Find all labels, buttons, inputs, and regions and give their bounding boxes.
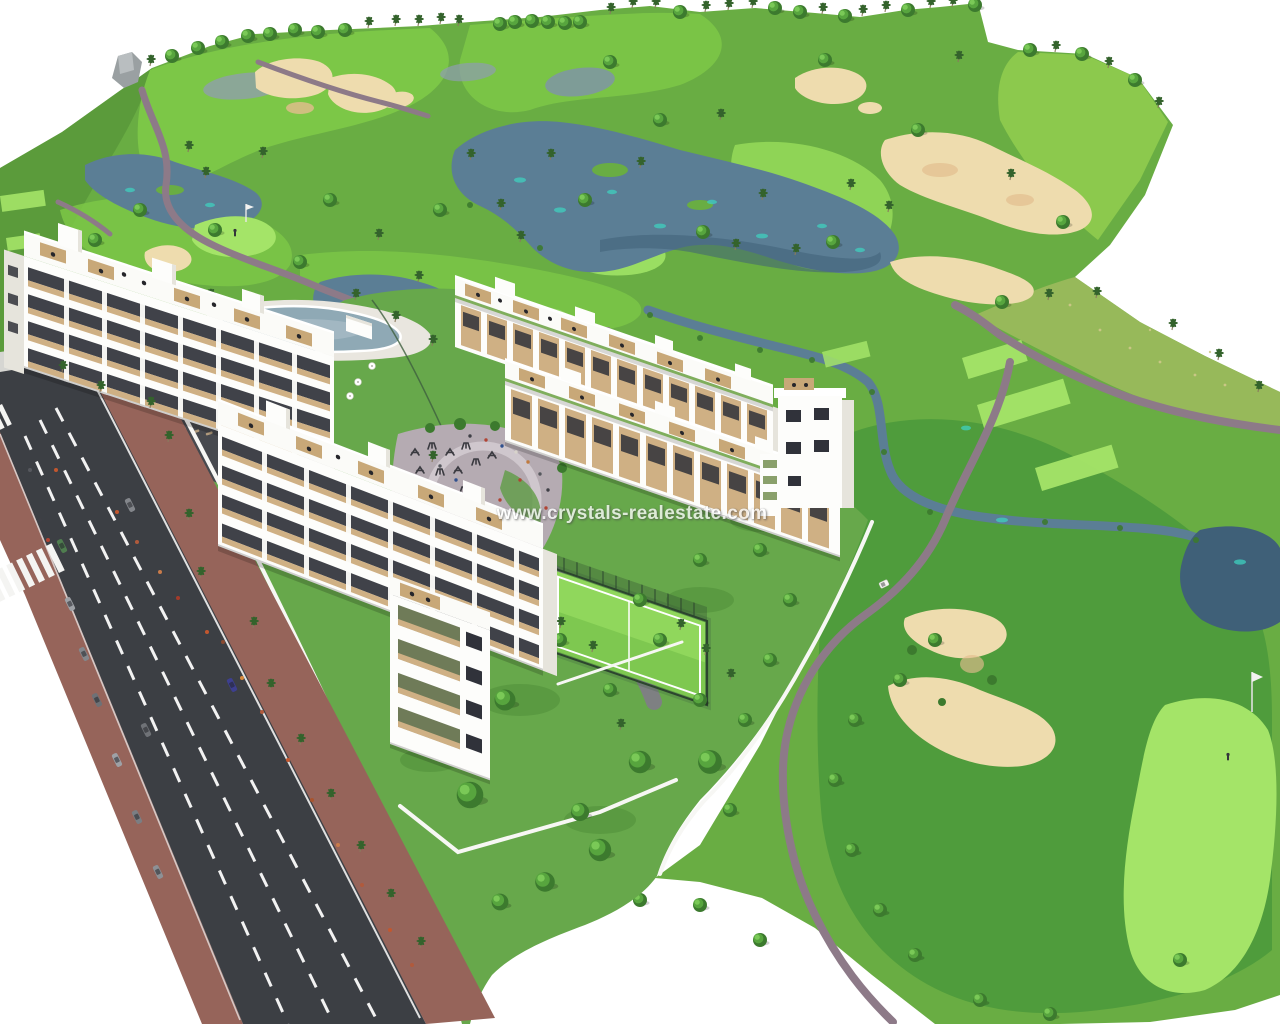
render-canvas: www.crystals-realestate.com — [0, 0, 1280, 1024]
apartment-tower-c — [390, 576, 490, 784]
aerial-render — [0, 0, 1280, 1024]
